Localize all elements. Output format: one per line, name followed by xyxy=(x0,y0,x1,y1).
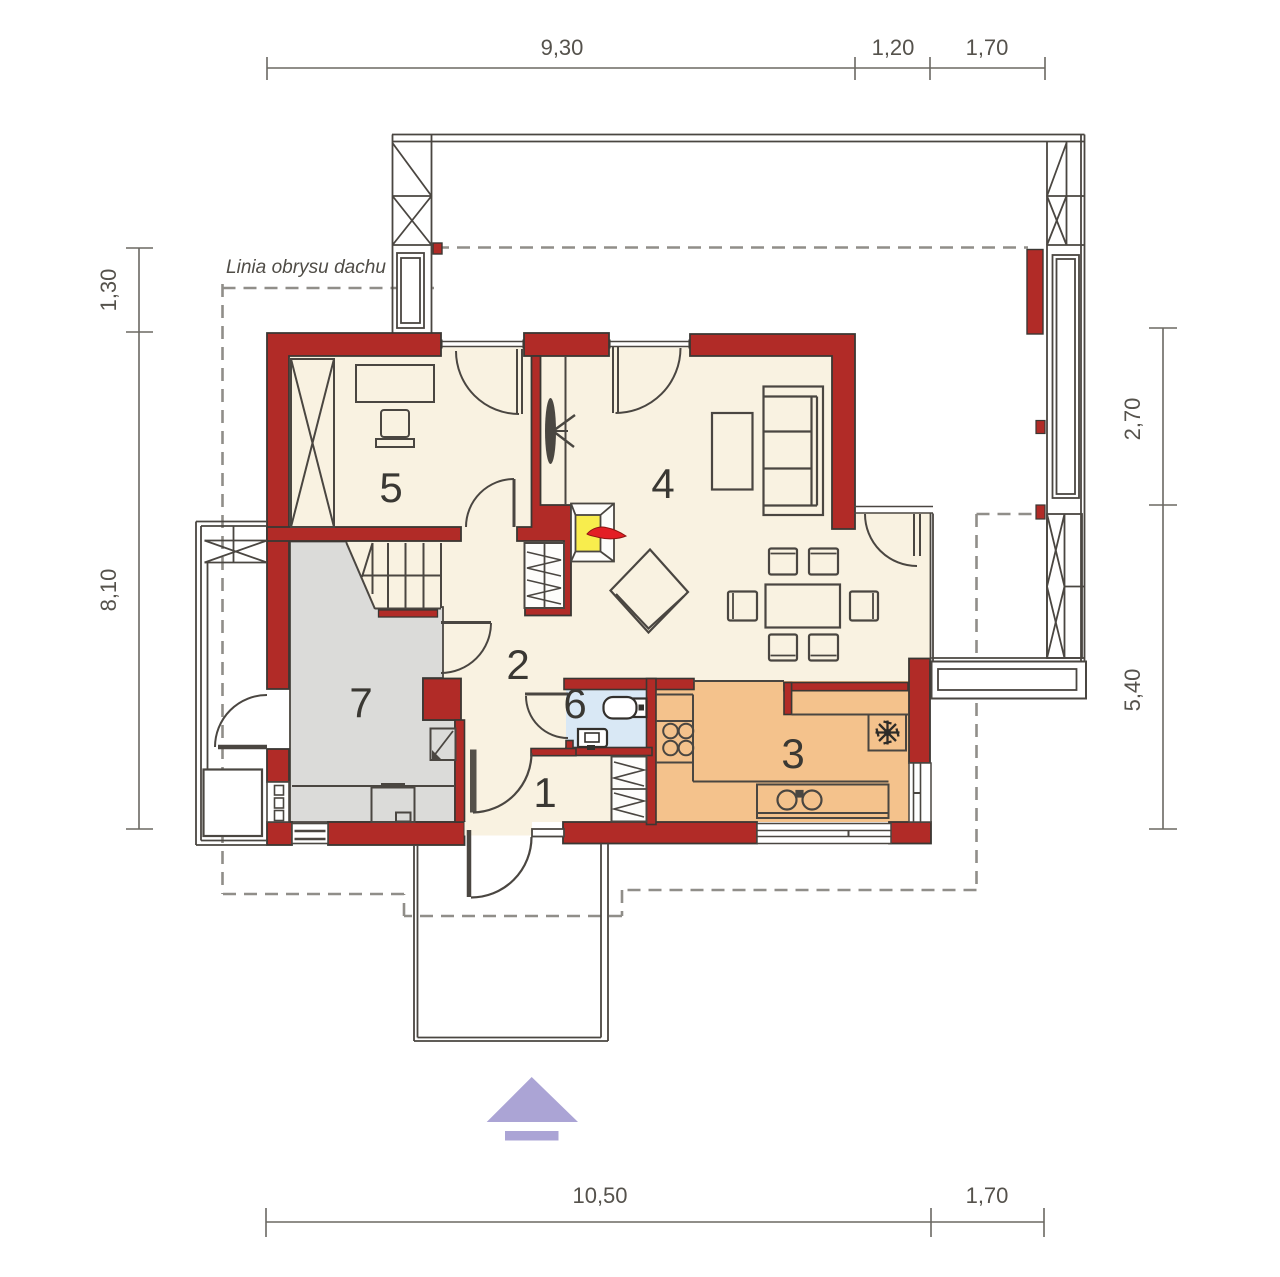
svg-text:7: 7 xyxy=(349,679,372,726)
svg-text:10,50: 10,50 xyxy=(572,1183,627,1208)
svg-text:1,70: 1,70 xyxy=(966,35,1009,60)
svg-text:3: 3 xyxy=(781,730,804,777)
svg-text:2,70: 2,70 xyxy=(1120,398,1145,441)
svg-text:1,30: 1,30 xyxy=(96,269,121,312)
svg-text:5,40: 5,40 xyxy=(1120,669,1145,712)
svg-text:5: 5 xyxy=(379,464,402,511)
svg-text:8,10: 8,10 xyxy=(96,569,121,612)
svg-text:1,70: 1,70 xyxy=(966,1183,1009,1208)
svg-text:1: 1 xyxy=(533,769,556,816)
svg-text:4: 4 xyxy=(651,460,674,507)
svg-text:6: 6 xyxy=(563,680,586,727)
svg-text:2: 2 xyxy=(506,641,529,688)
svg-text:9,30: 9,30 xyxy=(541,35,584,60)
svg-text:1,20: 1,20 xyxy=(872,35,915,60)
svg-text:Linia obrysu dachu: Linia obrysu dachu xyxy=(226,257,386,278)
